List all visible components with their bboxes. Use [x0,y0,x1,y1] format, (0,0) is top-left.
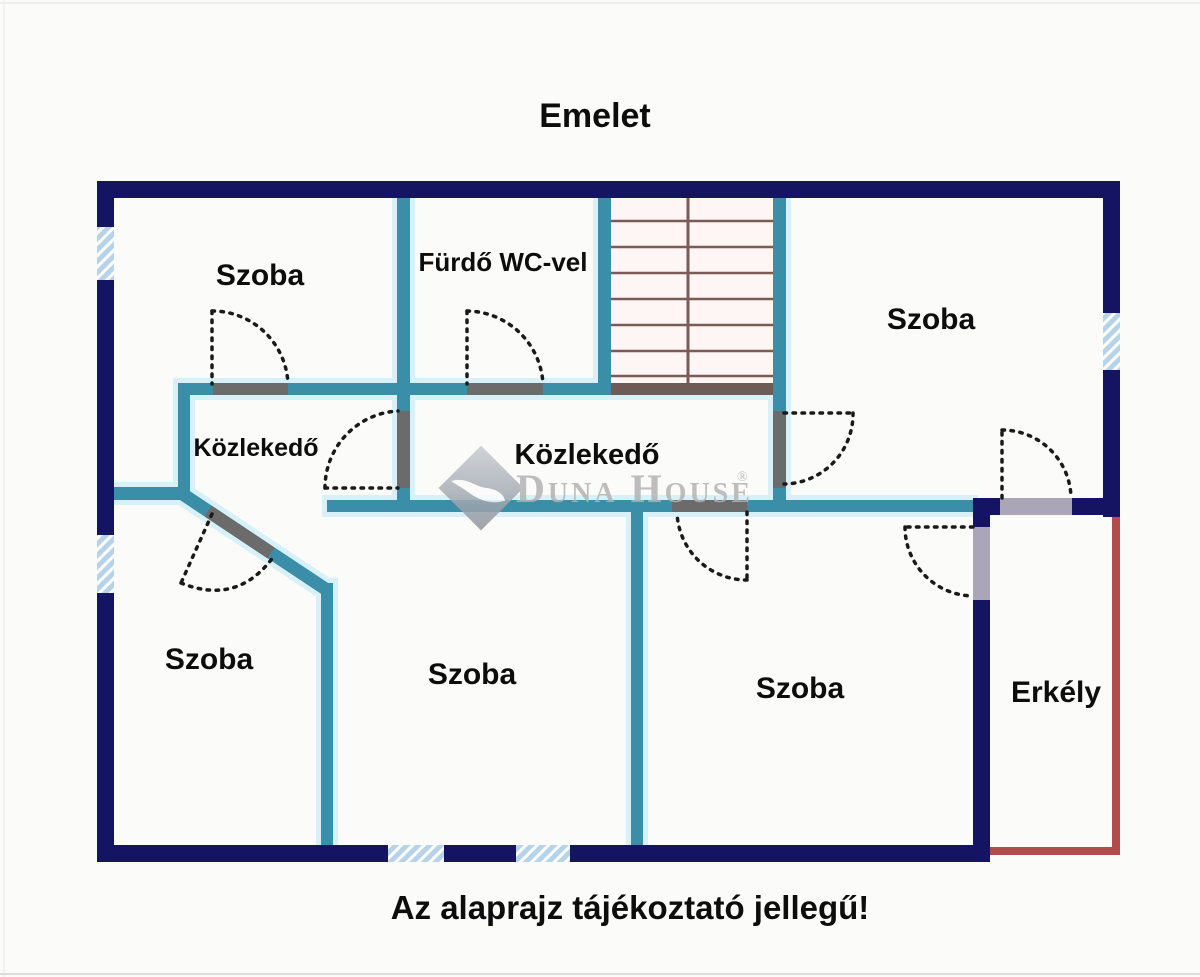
room-label-erkely: Erkély [1011,676,1101,709]
room-label-szoba-top-right: Szoba [887,303,976,336]
room-label-szoba-bottom-right: Szoba [756,672,845,705]
room-label-szoba-bottom-center: Szoba [428,658,517,691]
room-label-szoba-bottom-left: Szoba [165,643,254,676]
watermark-registered-mark: ® [737,470,748,485]
disclaimer-text: Az alaprajz tájékoztató jellegű! [391,889,870,926]
room-label-furdo: Fürdő WC-vel [419,247,588,277]
door-arc [784,413,853,484]
staircase [611,198,773,392]
watermark-brand-text: Duna House [516,466,753,511]
door-arc [212,311,288,384]
window [97,535,114,593]
door-arc [677,512,747,580]
door-arc [467,311,543,384]
window [1103,313,1120,370]
room-label-kozlekedo-main: Közlekedő [514,439,659,471]
room-label-kozlekedo-small: Közlekedő [193,434,318,462]
floorplan-title: Emelet [539,97,651,135]
room-label-szoba-top-left: Szoba [216,259,305,292]
window [388,845,444,862]
window [97,227,114,280]
door-arc [325,411,398,488]
floor-plan: Emelet [0,0,1200,977]
window [516,845,570,862]
door-arc [1002,430,1071,498]
door-arc [905,527,973,596]
dunahouse-logo-icon [439,446,524,531]
